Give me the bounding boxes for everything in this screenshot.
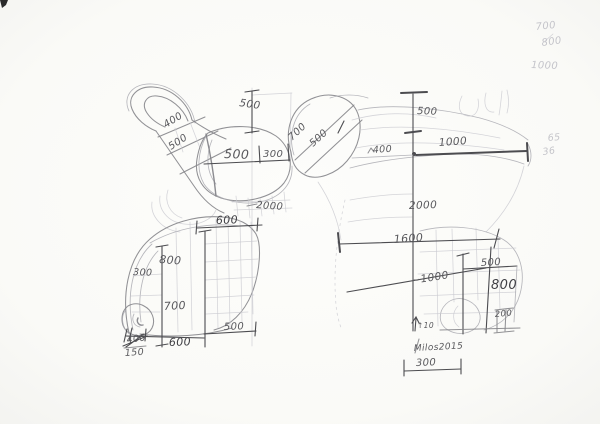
dim-label-neck-offset: 400 [372, 144, 392, 156]
margin-note: 1000 [531, 60, 558, 72]
dim-label-leg-height: 800 [491, 278, 517, 293]
dim-label-top-height-right: 500 [417, 106, 438, 118]
dim-label-lower-height: 700 [163, 299, 186, 313]
dim-label-overall-height-left: 2000 [256, 200, 284, 213]
dim-label-seat-depth: 300 [263, 149, 283, 160]
dim-label-side-depth: 300 [133, 267, 153, 279]
dim-label-foot-height: 200 [494, 309, 512, 320]
dim-label-ground-mark: ↑10 [417, 321, 434, 330]
dim-label-bottom-width: 600 [169, 335, 192, 349]
dim-label-inner-height: 800 [159, 253, 182, 268]
dim-label-bottom-right-width: 500 [224, 321, 245, 333]
dim-tick [527, 143, 528, 161]
dim-label-seat-width: 500 [224, 146, 250, 162]
margin-note: 65 [547, 132, 561, 144]
dim-label-leg-width: 500 [481, 257, 502, 269]
sketch-page: 500 400 500 500 300 2000 600 800 300 700… [0, 0, 600, 424]
margin-note: 700 [535, 20, 556, 33]
dim-label-arm-reach: 1000 [438, 135, 467, 149]
sketch-canvas: 500 400 500 500 300 2000 600 800 300 700… [0, 0, 600, 424]
dim-label-base-width: 300 [416, 357, 437, 369]
dim-label-overall-width: 1600 [393, 231, 423, 246]
dim-top-bar [401, 92, 427, 93]
margin-note: 36 [542, 145, 556, 158]
dim-label-overall-height-right: 2000 [409, 199, 438, 212]
dim-label-top-width: 600 [216, 213, 239, 227]
dim-label-foot-offset: 150 [124, 347, 144, 359]
paper-background [0, 0, 600, 424]
